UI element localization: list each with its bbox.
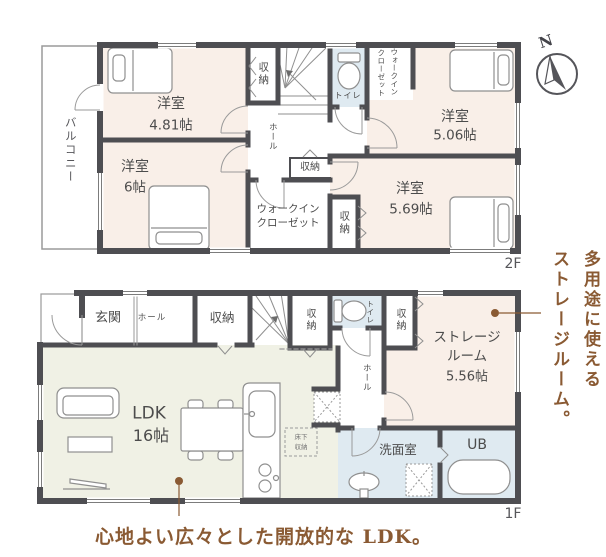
storage-note-col1: 多用途に使える [578, 250, 603, 390]
room-6-name: 洋室 [121, 160, 149, 174]
stove-burner-icon [259, 464, 271, 476]
senmen-label: 洗面室 [379, 444, 417, 457]
closet-1f-stairs-label: 収納 [304, 308, 314, 332]
toilet-icon-2f [338, 53, 360, 89]
toilet1f-door-arc [342, 328, 370, 356]
bathtub-icon [448, 460, 510, 494]
floor-2f-tag: 2F [505, 257, 522, 271]
hall-2f-label: ホール [268, 123, 277, 152]
room-569-name: 洋室 [396, 182, 424, 196]
storage-room-name-line1: ストレージ [433, 331, 500, 345]
stairs-2f-icon [278, 45, 330, 114]
dining-table-icon [181, 400, 243, 460]
bed-icon-6 [149, 186, 209, 250]
storage-room-size: 5.56帖 [446, 371, 488, 384]
room-481-name: 洋室 [157, 97, 185, 111]
balcony-label: バルコニー [64, 116, 76, 184]
coffee-table-icon [68, 437, 112, 452]
closet-2f-mid-label: 収納 [300, 163, 320, 173]
room-506-size: 5.06帖 [433, 129, 477, 143]
wic-mid-label-line2: クローゼット [257, 218, 320, 229]
room-481-size: 4.81帖 [149, 119, 193, 133]
bed-icon-506 [450, 50, 513, 91]
floorplan-drawing [0, 0, 606, 557]
ldk-size: 16帖 [133, 428, 169, 444]
genkan-label: 玄関 [95, 312, 121, 325]
wic-mid-label-line1: ウォークイン [257, 204, 320, 215]
room-6-size: 6帖 [124, 181, 146, 195]
closet-storage-label: 収納 [394, 308, 404, 332]
toilet2f-door-arc [335, 107, 362, 134]
compass-icon [537, 54, 577, 94]
hall-entry-label: ホール [138, 314, 167, 323]
wic-top-label-col1: ウォークイン [390, 48, 398, 96]
toilet-1f-label: トイレ [366, 300, 374, 324]
niche-x-box [314, 392, 340, 422]
ldk-caption: 心地よい広々とした開放的な LDK。 [95, 522, 432, 549]
wic-top-label-col2: クローゼット [377, 49, 385, 97]
closet-entry-label: 収納 [209, 312, 234, 325]
hall-1f-label: ホール [362, 364, 371, 393]
stairs-1f-icon [250, 293, 289, 344]
closet-569-label: 収納 [339, 211, 350, 236]
bed-icon-481 [108, 48, 172, 93]
storage-note-col2: ストレージルーム。 [547, 250, 572, 430]
storage-room-name-line2: ルーム [447, 350, 487, 364]
closet-2f-stairs-label: 収納 [258, 62, 269, 87]
room-569-size: 5.69帖 [389, 203, 433, 217]
toilet-icon-1f [334, 300, 366, 322]
ub-label: UB [467, 438, 487, 452]
balcony-door-gap [97, 84, 104, 111]
underfloor-label-line1: 床下 [295, 434, 308, 441]
floorplan-page: バルコニー 洋室 4.81帖 洋室 6帖 収納 トイレ ホール ウォークイン ク… [0, 0, 606, 557]
kitchen-counter-icon [243, 383, 280, 498]
underfloor-label-line2: 収納 [295, 444, 308, 451]
ldk-name: LDK [132, 406, 166, 423]
washer-pan-x-box [406, 464, 432, 496]
bed-icon-569 [450, 197, 513, 249]
sofa-icon [57, 388, 119, 418]
room-506-name: 洋室 [441, 110, 469, 124]
toilet-2f-label: トイレ [335, 92, 362, 100]
floor-1f-tag: 1F [505, 507, 522, 521]
